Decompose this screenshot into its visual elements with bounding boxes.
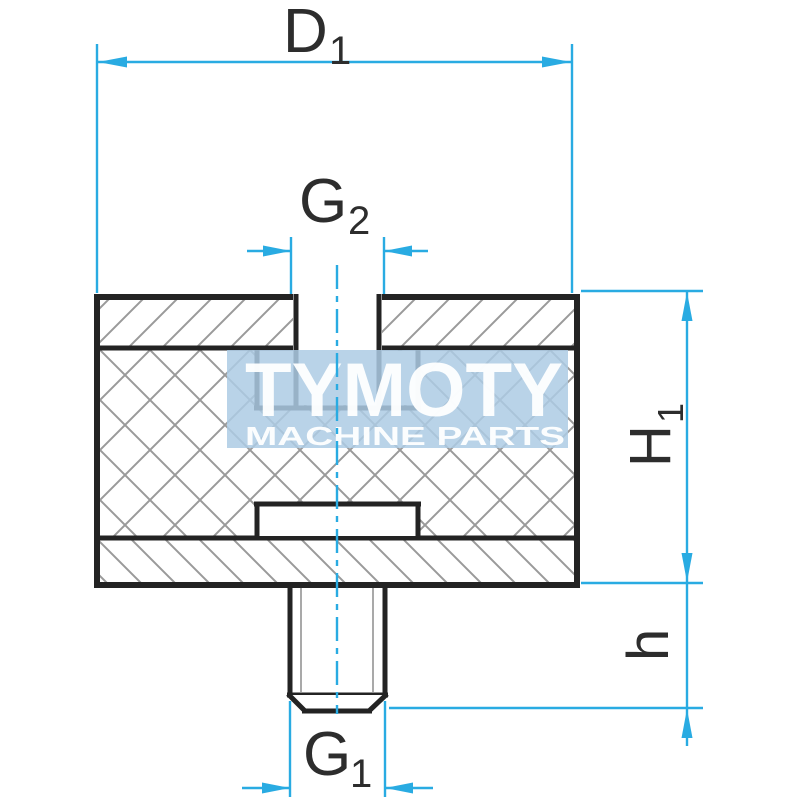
label-g2: G 2 — [299, 167, 370, 243]
label-g1-sub: 1 — [350, 752, 372, 796]
label-h: h — [616, 629, 681, 661]
g1-right-arrow — [385, 783, 413, 794]
g1-left-arrow — [262, 783, 290, 794]
d1-right-arrow — [542, 57, 571, 68]
label-d1-base: D — [283, 0, 328, 66]
label-d1: D 1 — [283, 0, 351, 73]
g2-left-arrow — [263, 246, 291, 257]
h1-top-arrow — [682, 292, 693, 321]
watermark: TYMOTY MACHINE PARTS — [227, 348, 568, 451]
d1-left-arrow — [98, 57, 127, 68]
label-g1: G 1 — [303, 720, 372, 796]
g2-right-arrow — [384, 246, 412, 257]
label-h1: H 1 — [618, 403, 691, 467]
label-h1-sub: 1 — [650, 403, 691, 423]
h-bottom-arrow — [682, 709, 693, 738]
engineering-drawing-canvas: TYMOTY MACHINE PARTS — [0, 0, 800, 800]
h1-bottom-arrow — [682, 553, 693, 582]
label-g1-base: G — [303, 720, 351, 789]
label-h1-base: H — [618, 425, 683, 467]
label-d1-sub: 1 — [329, 29, 351, 73]
buffer-section-drawing: TYMOTY MACHINE PARTS — [0, 0, 800, 800]
label-g2-sub: 2 — [348, 199, 370, 243]
label-h-base: h — [616, 629, 681, 661]
watermark-tagline-text: MACHINE PARTS — [245, 421, 565, 451]
label-g2-base: G — [299, 167, 347, 236]
